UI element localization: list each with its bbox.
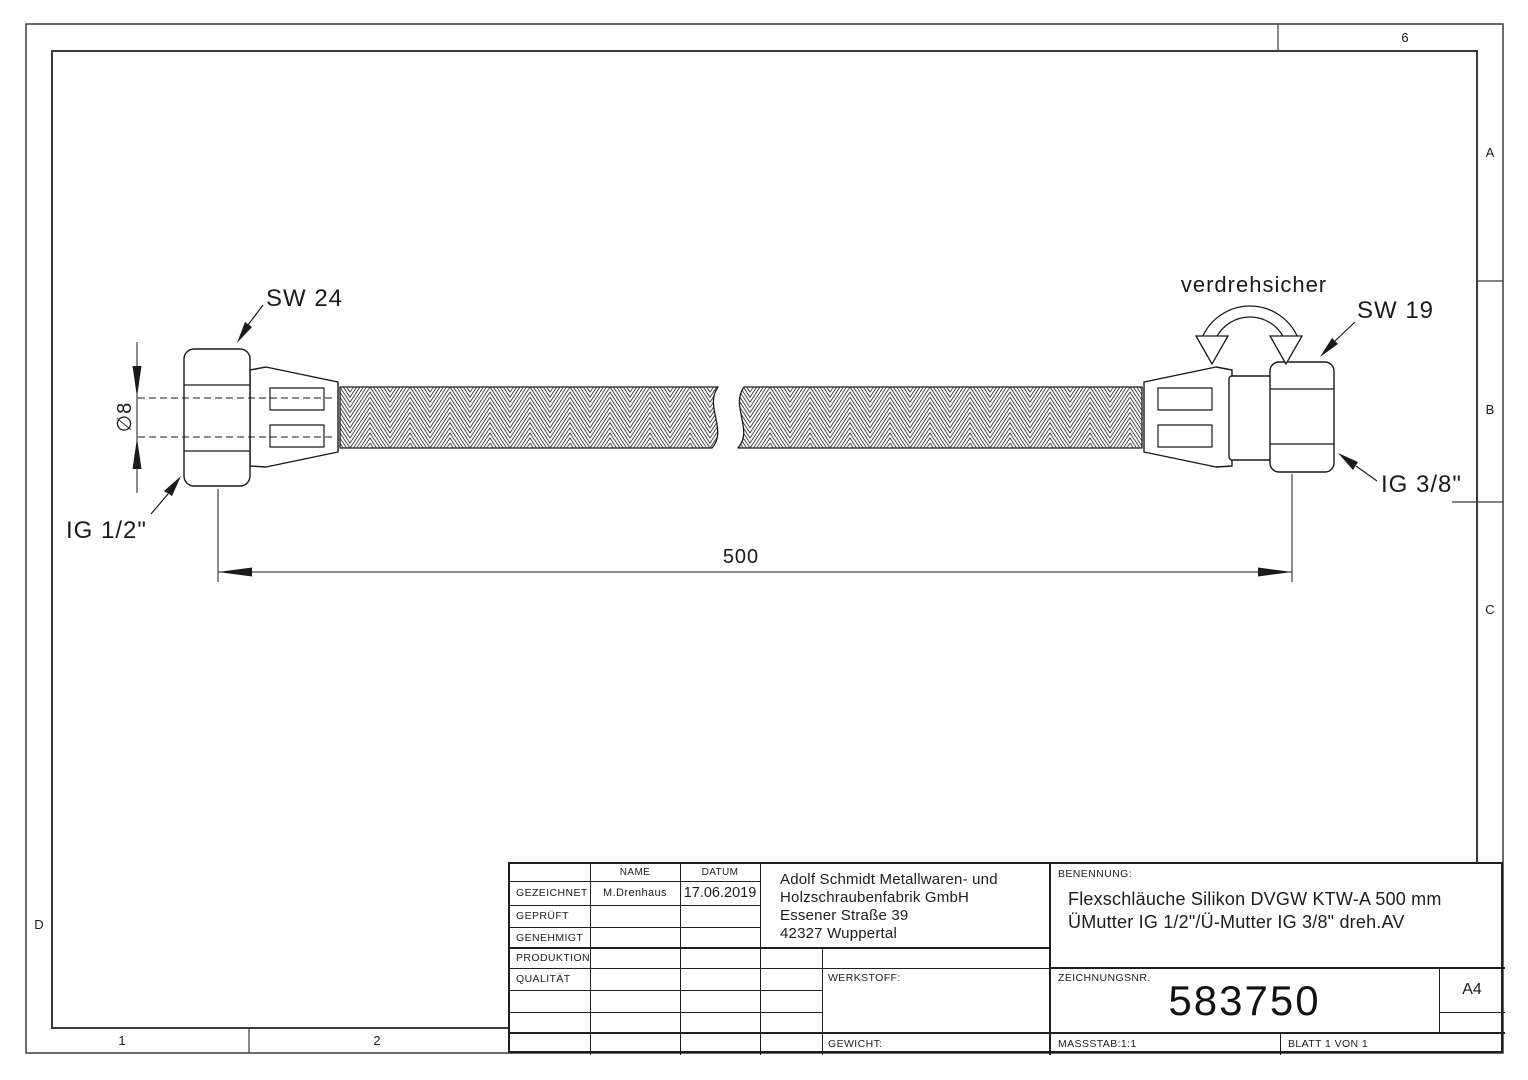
dimension-diameter: ∅8	[114, 342, 142, 493]
swivel-collar	[1229, 376, 1272, 460]
drawing-number: 583750	[1050, 968, 1439, 1033]
ferrule-right-slot-top	[1158, 388, 1212, 410]
ig12-label: IG 1/2"	[66, 517, 147, 544]
ig38-label: IG 3/8"	[1381, 471, 1462, 498]
ferrule-right-slot-bottom	[1158, 425, 1212, 447]
approval-header-name: NAME	[590, 864, 680, 881]
approval-row-label: QUALITÄT	[510, 968, 596, 990]
ferrule-left-slot-top	[270, 388, 324, 410]
zone-row-a: A	[1486, 145, 1495, 160]
ferrule-left-slot-bottom	[270, 425, 324, 447]
arrowhead	[1338, 453, 1358, 470]
rotation-arc	[1202, 306, 1298, 338]
company-address: Adolf Schmidt Metallwaren- und Holzschra…	[760, 864, 1050, 948]
approval-row-label: GEPRÜFT	[510, 905, 596, 927]
approval-header-date: DATUM	[680, 864, 760, 881]
part-title: Flexschläuche Silikon DVGW KTW-A 500 mm …	[1050, 880, 1505, 946]
approval-row-date: 17.06.2019	[680, 881, 760, 905]
material-field-label: WERKSTOFF:	[822, 968, 1056, 992]
arrowhead	[218, 568, 252, 577]
approval-row-name: M.Drenhaus	[590, 881, 680, 905]
braid-section-right	[738, 387, 1142, 448]
dimension-length: 500	[218, 474, 1292, 582]
approval-row-label: GEZEICHNET	[510, 881, 596, 905]
sw19-label: SW 19	[1357, 297, 1434, 324]
zone-row-b: B	[1486, 402, 1495, 417]
arrowhead	[237, 322, 252, 343]
nut-left	[184, 349, 250, 486]
twist-symbol: verdrehsicher	[1181, 272, 1327, 364]
drawing-sheet: 6 A B C D 1 2	[0, 0, 1528, 1080]
part-title-line1: Flexschläuche Silikon DVGW KTW-A 500 mm	[1068, 888, 1505, 911]
approval-row-label: PRODUKTION	[510, 948, 596, 968]
zone-row-c: C	[1485, 602, 1494, 617]
sw24-label: SW 24	[266, 285, 343, 312]
company-line: Holzschraubenfabrik GmbH	[780, 889, 1050, 907]
arrowhead	[1258, 568, 1292, 577]
company-line: Essener Straße 39	[780, 907, 1050, 925]
length-dim-text: 500	[723, 546, 759, 568]
arrowhead	[164, 476, 181, 496]
nut-right	[1270, 362, 1334, 472]
rotation-arrowhead-left	[1196, 336, 1228, 364]
ferrule-right	[1144, 367, 1232, 467]
company-line: Adolf Schmidt Metallwaren- und	[780, 871, 1050, 889]
twist-note-label: verdrehsicher	[1181, 272, 1327, 297]
scale-field: MASSSTAB:1:1	[1050, 1033, 1288, 1055]
company-line: 42327 Wuppertal	[780, 925, 1050, 943]
approval-row-label: GENEHMIGT	[510, 927, 596, 948]
arrowhead	[133, 366, 142, 397]
part-title-line2: ÜMutter IG 1/2"/Ü-Mutter IG 3/8" dreh.AV	[1068, 911, 1505, 934]
hose-assembly	[184, 349, 1334, 486]
sheet-field: BLATT 1 VON 1	[1280, 1033, 1513, 1055]
paper-format: A4	[1439, 968, 1505, 1012]
zone-row-d: D	[34, 917, 43, 932]
arrowhead	[133, 438, 142, 469]
zone-col-2: 2	[373, 1033, 380, 1048]
title-block: NAME DATUM GEZEICHNET M.Drenhaus 17.06.2…	[508, 862, 1503, 1053]
ferrule-left	[250, 367, 338, 467]
zone-col-1: 1	[118, 1033, 125, 1048]
zone-col-6: 6	[1401, 30, 1408, 45]
diameter-dim-text: ∅8	[114, 402, 136, 433]
rotation-arrowhead-right	[1270, 336, 1302, 364]
braid-section-left	[340, 387, 718, 448]
weight-field-label: GEWICHT:	[822, 1033, 1056, 1055]
